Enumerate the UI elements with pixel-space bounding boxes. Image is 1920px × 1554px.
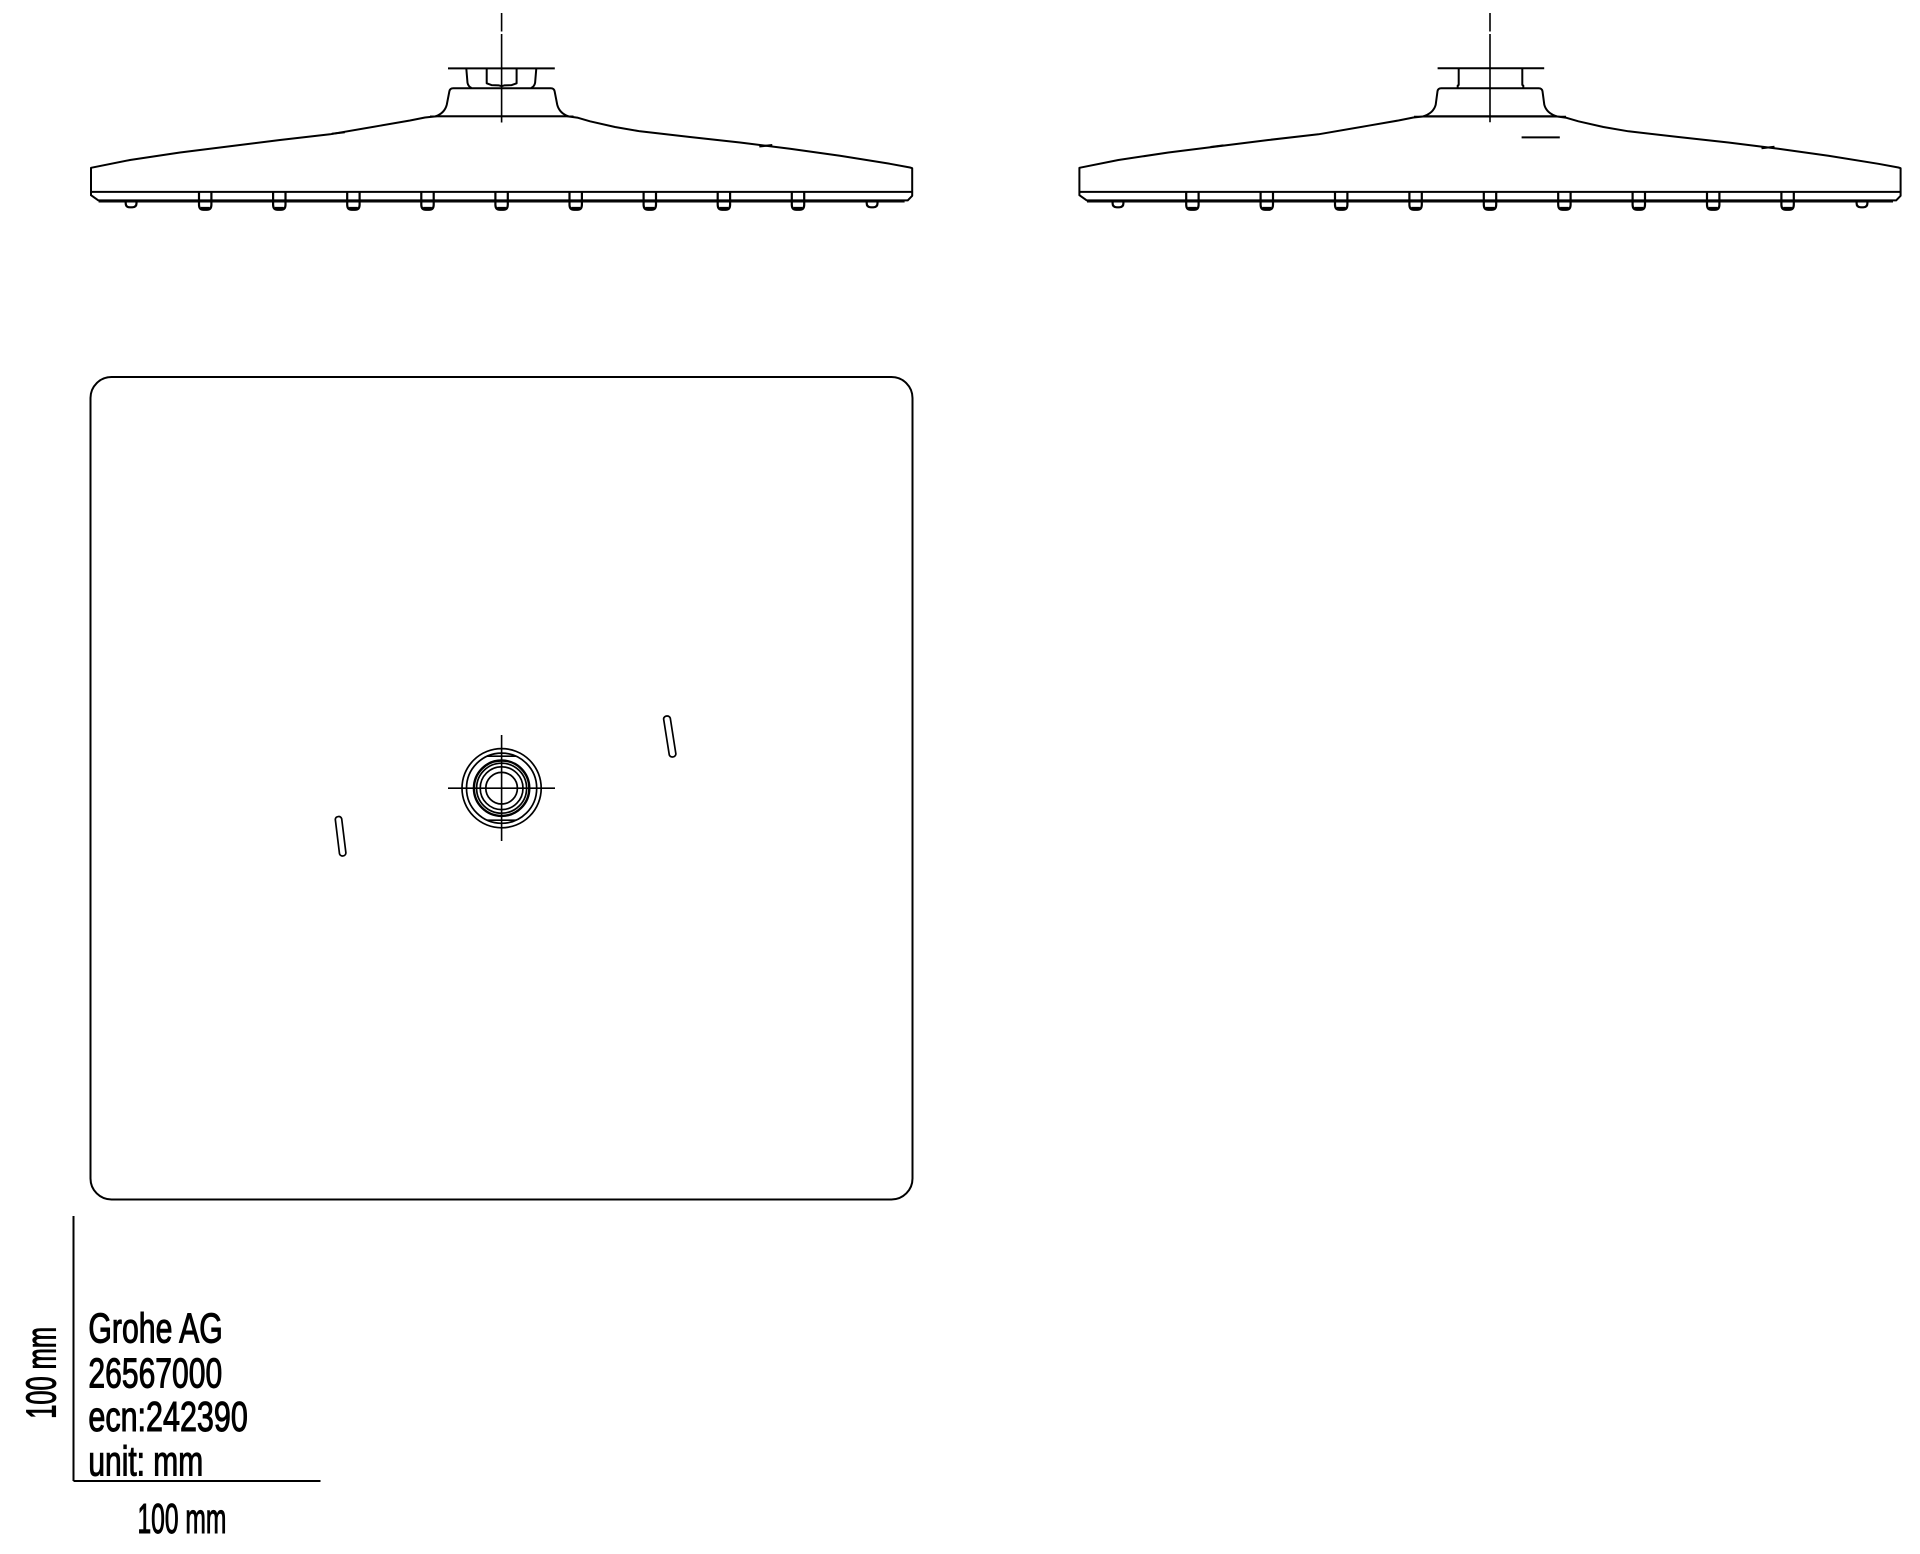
- svg-text:26567000: 26567000: [88, 1349, 222, 1396]
- svg-text:100 mm: 100 mm: [138, 1495, 227, 1542]
- svg-text:Grohe AG: Grohe AG: [88, 1305, 222, 1352]
- svg-text:ecn:242390: ecn:242390: [88, 1393, 247, 1440]
- svg-text:100 mm: 100 mm: [18, 1327, 65, 1419]
- svg-text:unit: mm: unit: mm: [88, 1438, 203, 1485]
